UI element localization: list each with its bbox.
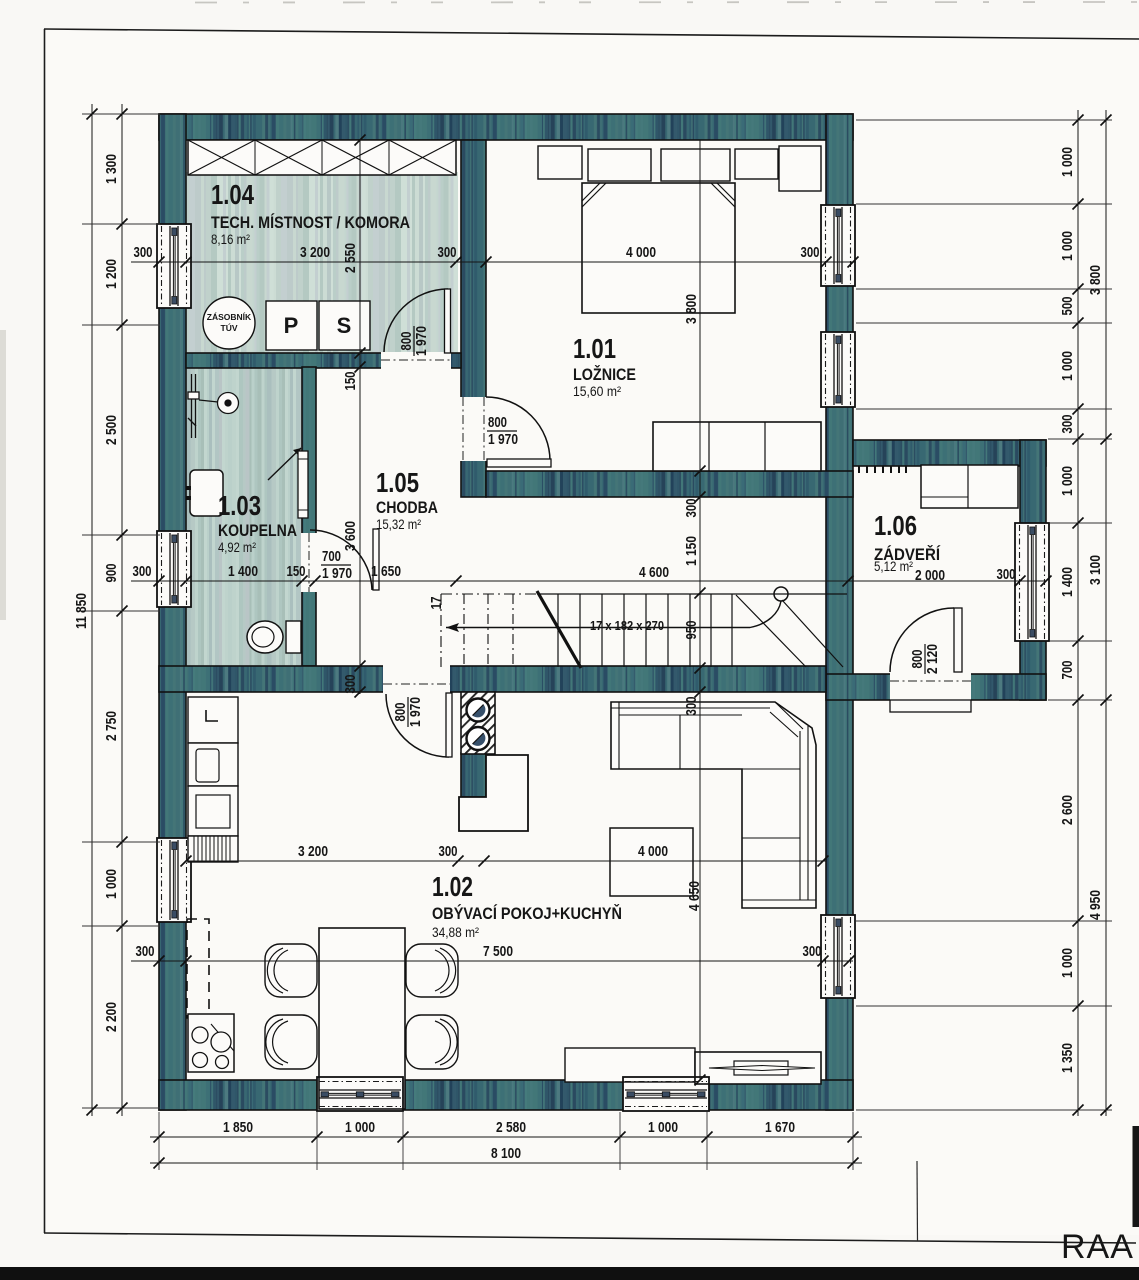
svg-text:1 350: 1 350 xyxy=(1059,1043,1076,1073)
svg-text:11 850: 11 850 xyxy=(73,593,90,629)
svg-text:1 150: 1 150 xyxy=(683,536,700,566)
svg-text:1 400: 1 400 xyxy=(228,563,258,580)
svg-text:1 000: 1 000 xyxy=(1059,351,1076,381)
svg-text:ZÁSOBNÍK: ZÁSOBNÍK xyxy=(207,312,252,322)
svg-text:3 100: 3 100 xyxy=(1087,555,1104,585)
svg-text:1 000: 1 000 xyxy=(1059,147,1076,177)
svg-text:500: 500 xyxy=(1059,297,1076,316)
svg-text:2 500: 2 500 xyxy=(103,415,120,445)
svg-text:800: 800 xyxy=(488,414,507,431)
svg-text:1.01: 1.01 xyxy=(573,333,616,364)
svg-text:300: 300 xyxy=(801,244,820,261)
svg-text:1 650: 1 650 xyxy=(371,563,401,580)
svg-text:1 970: 1 970 xyxy=(413,326,430,356)
svg-text:3 800: 3 800 xyxy=(1087,265,1104,295)
svg-text:4 000: 4 000 xyxy=(638,843,668,860)
svg-text:5,12 m²: 5,12 m² xyxy=(874,559,913,574)
svg-text:8,16 m²: 8,16 m² xyxy=(211,232,250,247)
svg-text:RAA: RAA xyxy=(1061,1228,1134,1266)
svg-text:8 100: 8 100 xyxy=(491,1145,521,1162)
svg-text:2 600: 2 600 xyxy=(1059,795,1076,825)
svg-text:1 000: 1 000 xyxy=(345,1119,375,1136)
svg-text:1 850: 1 850 xyxy=(223,1119,253,1136)
svg-text:1 000: 1 000 xyxy=(1059,466,1076,496)
svg-text:OBÝVACÍ POKOJ+KUCHYŇ: OBÝVACÍ POKOJ+KUCHYŇ xyxy=(432,904,622,923)
svg-text:15,32 m²: 15,32 m² xyxy=(376,517,421,532)
svg-text:3 800: 3 800 xyxy=(683,294,700,324)
svg-text:2 550: 2 550 xyxy=(342,243,359,273)
svg-text:1.04: 1.04 xyxy=(211,179,255,210)
svg-text:900: 900 xyxy=(103,564,120,583)
svg-text:300: 300 xyxy=(133,563,152,580)
svg-text:1 970: 1 970 xyxy=(407,697,424,727)
svg-text:17: 17 xyxy=(428,597,445,610)
svg-text:300: 300 xyxy=(997,566,1016,583)
svg-text:1 200: 1 200 xyxy=(103,259,120,289)
svg-text:KOUPELNA: KOUPELNA xyxy=(218,521,297,540)
svg-text:950: 950 xyxy=(683,621,700,640)
svg-text:1 000: 1 000 xyxy=(1059,231,1076,261)
svg-text:1 400: 1 400 xyxy=(1059,567,1076,597)
svg-text:2 000: 2 000 xyxy=(915,567,945,584)
svg-text:300: 300 xyxy=(438,244,457,261)
svg-text:300: 300 xyxy=(803,943,822,960)
svg-text:3 600: 3 600 xyxy=(342,521,359,551)
svg-text:4 650: 4 650 xyxy=(686,881,703,911)
svg-text:300: 300 xyxy=(683,499,700,518)
svg-text:3 200: 3 200 xyxy=(298,843,328,860)
svg-text:LOŽNICE: LOŽNICE xyxy=(573,365,636,384)
svg-text:1 670: 1 670 xyxy=(765,1119,795,1136)
svg-text:1.05: 1.05 xyxy=(376,467,419,498)
svg-text:2 200: 2 200 xyxy=(103,1002,120,1032)
svg-text:700: 700 xyxy=(322,548,341,565)
svg-text:2 580: 2 580 xyxy=(496,1119,526,1136)
svg-text:1.06: 1.06 xyxy=(874,510,917,541)
svg-text:4 000: 4 000 xyxy=(626,244,656,261)
svg-text:CHODBA: CHODBA xyxy=(376,498,438,517)
svg-text:17 x 182 x 270: 17 x 182 x 270 xyxy=(590,618,664,633)
svg-text:TECH. MÍSTNOST / KOMORA: TECH. MÍSTNOST / KOMORA xyxy=(211,213,410,232)
svg-text:P: P xyxy=(284,313,299,338)
svg-text:4 600: 4 600 xyxy=(639,564,669,581)
svg-text:150: 150 xyxy=(342,372,359,391)
svg-text:300: 300 xyxy=(683,697,700,716)
svg-text:1 000: 1 000 xyxy=(1059,948,1076,978)
svg-text:300: 300 xyxy=(342,675,359,694)
svg-text:3 200: 3 200 xyxy=(300,244,330,261)
svg-text:1 970: 1 970 xyxy=(322,565,352,582)
svg-text:300: 300 xyxy=(1059,415,1076,434)
svg-text:4 950: 4 950 xyxy=(1087,890,1104,920)
svg-text:300: 300 xyxy=(134,244,153,261)
svg-text:2 750: 2 750 xyxy=(103,711,120,741)
svg-text:1 000: 1 000 xyxy=(648,1119,678,1136)
svg-text:4,92 m²: 4,92 m² xyxy=(218,540,256,555)
svg-text:150: 150 xyxy=(287,563,306,580)
svg-text:1 300: 1 300 xyxy=(103,154,120,184)
svg-text:S: S xyxy=(337,313,352,338)
svg-text:15,60 m²: 15,60 m² xyxy=(573,384,621,399)
svg-text:2 120: 2 120 xyxy=(924,644,941,674)
svg-text:300: 300 xyxy=(439,843,458,860)
svg-text:1 970: 1 970 xyxy=(488,431,518,448)
svg-text:300: 300 xyxy=(136,943,155,960)
svg-text:7 500: 7 500 xyxy=(483,943,513,960)
svg-text:700: 700 xyxy=(1059,661,1076,680)
svg-text:1.03: 1.03 xyxy=(218,490,261,521)
svg-text:34,88 m²: 34,88 m² xyxy=(432,925,479,940)
svg-text:1 000: 1 000 xyxy=(103,869,120,899)
svg-text:TÚV: TÚV xyxy=(221,322,238,333)
svg-text:1.02: 1.02 xyxy=(432,871,473,902)
